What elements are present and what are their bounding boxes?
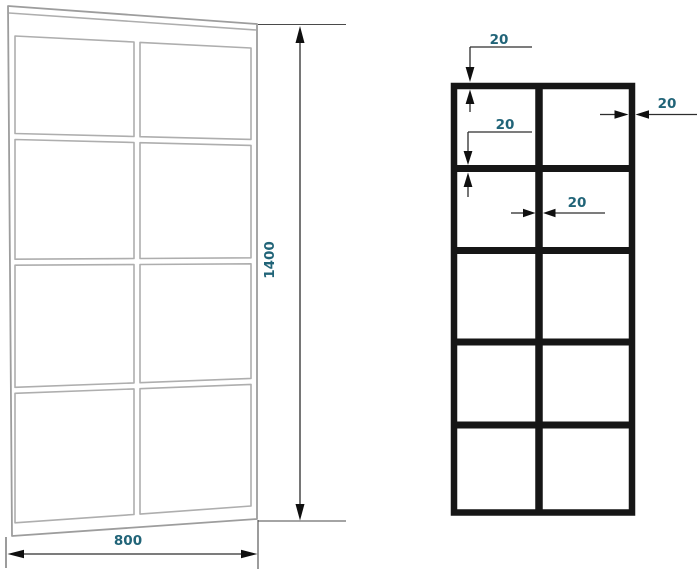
panel-cell xyxy=(15,36,134,137)
rail-profile-dim-label: 20 xyxy=(496,117,515,133)
mullion-profile-dimension: 20 xyxy=(511,195,605,217)
arrow-up-icon xyxy=(466,90,475,105)
right-profile-dim-label: 20 xyxy=(658,96,677,112)
technical-drawing-svg: 1400 800 xyxy=(0,0,700,577)
frame-outline xyxy=(454,86,632,513)
panel-cell xyxy=(15,389,134,523)
drawing-canvas: 1400 800 xyxy=(0,0,700,577)
arrow-left-icon xyxy=(543,209,556,217)
front-view: 20 20 20 xyxy=(454,32,697,513)
arrow-left-icon xyxy=(636,110,650,118)
panel-cell xyxy=(140,384,251,514)
arrow-down-icon xyxy=(296,504,305,521)
arrow-down-icon xyxy=(464,151,473,165)
arrow-right-icon xyxy=(241,550,258,558)
width-dim-label: 800 xyxy=(114,533,142,549)
top-profile-dimension: 20 xyxy=(466,32,532,112)
height-dimension: 1400 xyxy=(258,25,346,522)
height-dim-label: 1400 xyxy=(262,241,278,279)
panel-cell xyxy=(140,264,251,383)
perspective-view: 1400 800 xyxy=(6,6,346,569)
arrow-up-icon xyxy=(464,173,473,188)
top-profile-dim-label: 20 xyxy=(490,32,509,48)
panel-cell xyxy=(140,42,251,139)
panel-outer-outline xyxy=(8,6,257,536)
mullion-profile-dim-label: 20 xyxy=(568,195,587,211)
arrow-right-icon xyxy=(615,110,629,118)
panel-cell xyxy=(15,265,134,388)
rail-profile-dimension: 20 xyxy=(464,117,532,197)
arrow-right-icon xyxy=(523,209,536,217)
arrow-up-icon xyxy=(296,26,305,43)
right-profile-dimension: 20 xyxy=(600,96,697,119)
panel-cell xyxy=(15,140,134,260)
arrow-left-icon xyxy=(8,550,25,558)
panel-cell xyxy=(140,143,251,259)
arrow-down-icon xyxy=(466,67,475,82)
